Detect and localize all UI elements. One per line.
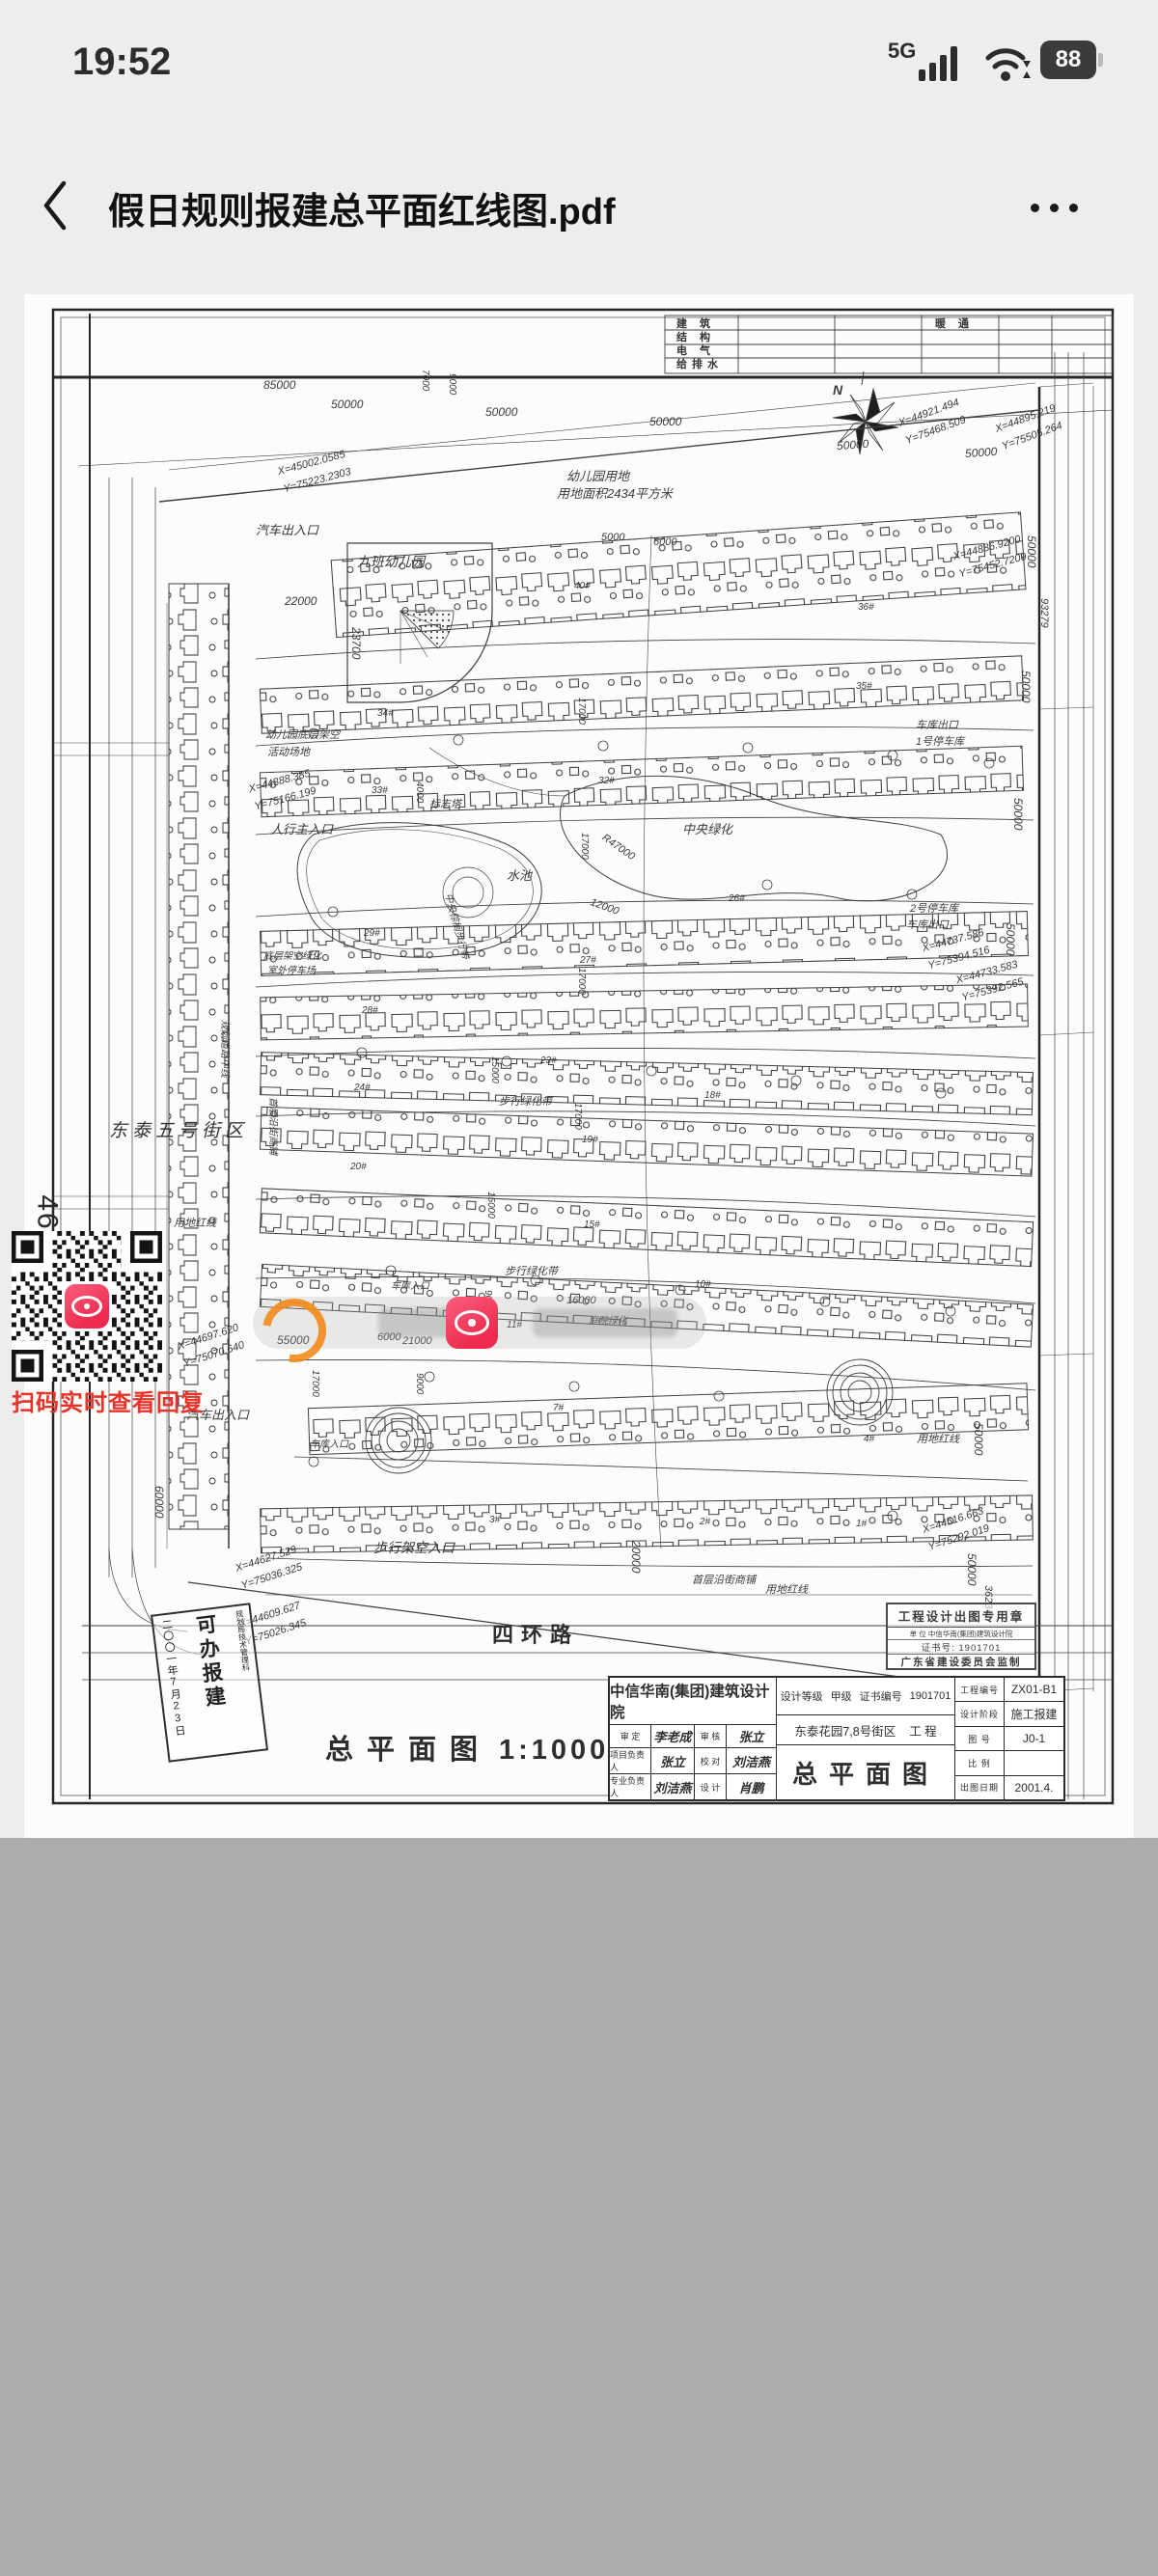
seal-title: 工程设计出图专用章 — [888, 1604, 1034, 1628]
redline-label: 用地红线 — [765, 1585, 808, 1597]
scale-caption-title: 总平面图 — [325, 1736, 491, 1765]
field-label: 审 定 — [610, 1725, 651, 1747]
field-label: 出图日期 — [955, 1776, 1005, 1799]
drawing-title-block: 中信华南(集团)建筑设计院 审 定 李老成 审 核 张立 项目负责人 张立 校 … — [608, 1676, 1065, 1801]
discipline-label: 给排水 — [676, 360, 723, 371]
adjacent-block-label: 东泰五号街区 — [109, 1122, 248, 1141]
discipline-label: 结 构 — [676, 333, 715, 344]
qr-overlay[interactable]: 扫码实时查看回复 — [10, 1225, 241, 1438]
phone-screen: { "status_bar": {"time": "19:52", "netwo… — [0, 0, 1158, 2576]
cert-number: 1901701 — [910, 1690, 951, 1702]
design-grade: 甲级 — [831, 1688, 852, 1704]
map-label: 23700 — [349, 627, 362, 659]
map-label: 水池 — [507, 869, 532, 883]
map-label: 车库入口 — [391, 1282, 429, 1293]
map-label: 2号停车库 — [910, 904, 958, 916]
map-label: 室外停车场 — [267, 967, 316, 977]
map-label: 活动场地 — [267, 748, 310, 759]
map-label: 4000 — [414, 781, 425, 803]
field-label: 审 核 — [695, 1725, 727, 1747]
battery-icon: 88 — [1040, 41, 1096, 79]
scale-value — [1005, 1751, 1063, 1774]
map-label: 首层沿街商铺 — [267, 1097, 278, 1155]
map-label: 50000 — [1011, 798, 1024, 830]
seal-issuer: 广东省建设委员会监制 — [888, 1655, 1034, 1669]
network-type-label: 5G — [888, 39, 916, 64]
map-label: 17000 — [572, 1103, 583, 1130]
field-label: 设 计 — [695, 1774, 727, 1799]
building-number: 29# — [364, 929, 380, 940]
map-label: 22000 — [285, 595, 317, 608]
map-label: 步行绿化带 — [505, 1267, 558, 1278]
signature: 刘洁燕 — [727, 1748, 776, 1773]
map-label: 50000 — [649, 416, 681, 428]
field-label: 图 号 — [955, 1727, 1005, 1750]
building-number: 28# — [362, 1006, 378, 1017]
map-label: 汽车出入口 — [256, 524, 318, 537]
map-label: 50000 — [1019, 671, 1032, 702]
map-label: 标志塔 — [429, 800, 461, 811]
project-number: ZX01-B1 — [1005, 1678, 1063, 1701]
building-number: 32# — [598, 777, 615, 787]
map-label: 17000 — [576, 968, 587, 995]
building-number: 36# — [858, 603, 874, 614]
map-label: 50000 — [837, 438, 869, 452]
map-label: 首层沿街商铺 — [692, 1576, 756, 1587]
map-label: 幼儿园用地 — [566, 470, 629, 483]
building-number: 34# — [377, 709, 394, 720]
field-label: 专业负责人 — [610, 1774, 651, 1799]
field-label: 项目负责人 — [610, 1748, 651, 1773]
sheet-title: 总平面图 — [777, 1745, 954, 1799]
building-number: 24# — [354, 1083, 371, 1094]
wifi-icon — [984, 42, 1034, 90]
document-title: 假日规则报建总平面红线图.pdf — [108, 181, 616, 234]
stamp-main-text: 可办报建 — [189, 1612, 234, 1752]
field-label: 证书编号 — [860, 1688, 902, 1704]
map-label: 50000 — [972, 1423, 984, 1455]
sheet-number: J0-1 — [1005, 1727, 1063, 1750]
field-label: 工程编号 — [955, 1678, 1005, 1701]
building-number: 7# — [553, 1404, 564, 1414]
discipline-label: 建 筑 — [676, 319, 715, 331]
road-name-label: 四环路 — [492, 1624, 579, 1646]
signature: 张立 — [651, 1748, 695, 1773]
field-label: 比 例 — [955, 1751, 1005, 1774]
signature: 肖鹏 — [727, 1774, 776, 1799]
map-label: 85000 — [263, 379, 295, 392]
pdf-page-canvas[interactable]: 建 筑 结 构 电 气 给排水 暖 通 N 85000 50000 50000 … — [24, 294, 1134, 1838]
map-label: 50000 — [965, 446, 998, 460]
field-label: 设计等级 — [781, 1688, 823, 1704]
building-number: 15# — [584, 1220, 600, 1231]
building-number: 26# — [729, 894, 745, 905]
map-label: 20000 — [629, 1541, 642, 1573]
map-label: 规划道路中线 — [219, 1020, 230, 1078]
qr-caption: 扫码实时查看回复 — [12, 1384, 205, 1417]
building-number: 23# — [540, 1056, 557, 1067]
building-number: 4# — [864, 1435, 874, 1445]
qr-center-eye-icon — [65, 1284, 109, 1329]
back-button[interactable] — [37, 176, 75, 235]
building-number: 10# — [695, 1280, 711, 1291]
map-label: 50000 — [331, 398, 363, 411]
scale-caption-value: 1:1000 — [499, 1736, 609, 1765]
field-label: 工 程 — [909, 1721, 936, 1740]
pdf-viewer-header: 假日规则报建总平面红线图.pdf — [0, 162, 1158, 249]
design-seal-stamp: 工程设计出图专用章 单 位 中信华南(集团)建筑设计院 证书号: 1901701… — [886, 1603, 1036, 1670]
building-number: 40# — [574, 582, 591, 592]
building-number: 27# — [580, 956, 596, 967]
map-label: 车库出口 — [916, 721, 958, 732]
map-label: 中央绿化 — [682, 823, 732, 836]
map-label: 5000 — [601, 533, 624, 544]
map-label: 17000 — [576, 698, 587, 725]
map-label: 6000 — [653, 537, 676, 549]
building-number: 3# — [489, 1516, 500, 1526]
map-label: 17000 — [310, 1370, 320, 1397]
discipline-label: 电 气 — [676, 346, 715, 358]
document-end-background — [0, 1838, 1158, 2576]
signature: 李老成 — [651, 1725, 695, 1747]
map-label: 用地面积2434平方米 — [557, 487, 673, 501]
seal-unit: 单 位 中信华南(集团)建筑设计院 — [888, 1628, 1034, 1640]
map-label: 15000 — [485, 1192, 496, 1219]
map-label: 1号停车库 — [916, 737, 964, 749]
building-number: 18# — [704, 1091, 721, 1102]
map-label: 人行主入口 — [270, 823, 333, 836]
status-bar: 19:52 5G 88 — [0, 0, 1158, 106]
map-label: 93279 — [1037, 598, 1049, 628]
map-label: 50000 — [485, 406, 517, 419]
building-number: 19# — [582, 1136, 598, 1146]
map-label: 步行架空入口 — [373, 1541, 455, 1555]
map-label: 7000 — [420, 370, 430, 391]
building-number: 33# — [372, 786, 388, 797]
map-label: 60000 — [152, 1486, 165, 1518]
watermark-eye-icon — [446, 1297, 498, 1349]
signature: 张立 — [727, 1725, 776, 1747]
building-number: 35# — [856, 682, 872, 693]
map-label: 车库出口 — [906, 920, 949, 932]
building-number: 2# — [700, 1518, 710, 1528]
map-label: 车库入口 — [310, 1440, 348, 1451]
map-label: 17000 — [579, 833, 590, 860]
watermark-ghost-text — [533, 1308, 677, 1337]
more-options-button[interactable] — [1031, 193, 1114, 222]
map-label: 幼儿园底层架空 — [265, 730, 340, 742]
map-label: 50000 — [1025, 535, 1037, 567]
north-label: N — [833, 383, 842, 397]
map-label: 底层架空绿化 — [263, 952, 321, 963]
discipline-label: 暖 通 — [935, 319, 974, 331]
project-name: 东泰花园7,8号街区 — [794, 1721, 896, 1740]
field-label: 设计阶段 — [955, 1702, 1005, 1725]
map-label: 50000 — [1004, 923, 1016, 955]
seal-cert: 证书号: 1901701 — [888, 1640, 1034, 1655]
design-stage: 施工报建 — [1005, 1702, 1063, 1725]
building-number: 1# — [856, 1520, 867, 1530]
map-label: 50000 — [965, 1553, 978, 1585]
planning-approval-stamp: 二〇〇一年7月23日 可办报建 规划局技术管理科 — [151, 1603, 268, 1763]
signal-strength-icon — [919, 44, 973, 81]
design-firm-name: 中信华南(集团)建筑设计院 — [610, 1678, 776, 1725]
building-number: 20# — [350, 1163, 367, 1173]
corner-discipline-table — [665, 315, 1113, 373]
map-label: 9000 — [447, 373, 457, 395]
map-label: 15000 — [489, 1056, 500, 1083]
map-label: 9000 — [414, 1373, 425, 1394]
signature: 刘洁燕 — [651, 1774, 695, 1799]
issue-date: 2001.4. — [1005, 1776, 1063, 1799]
field-label: 校 对 — [695, 1748, 727, 1773]
clock: 19:52 — [72, 41, 171, 84]
redline-label: 用地红线 — [917, 1435, 959, 1446]
map-label: 九班幼儿园 — [357, 555, 425, 569]
housing-rows — [169, 512, 1034, 1553]
map-label: 步行绿化带 — [499, 1097, 552, 1109]
